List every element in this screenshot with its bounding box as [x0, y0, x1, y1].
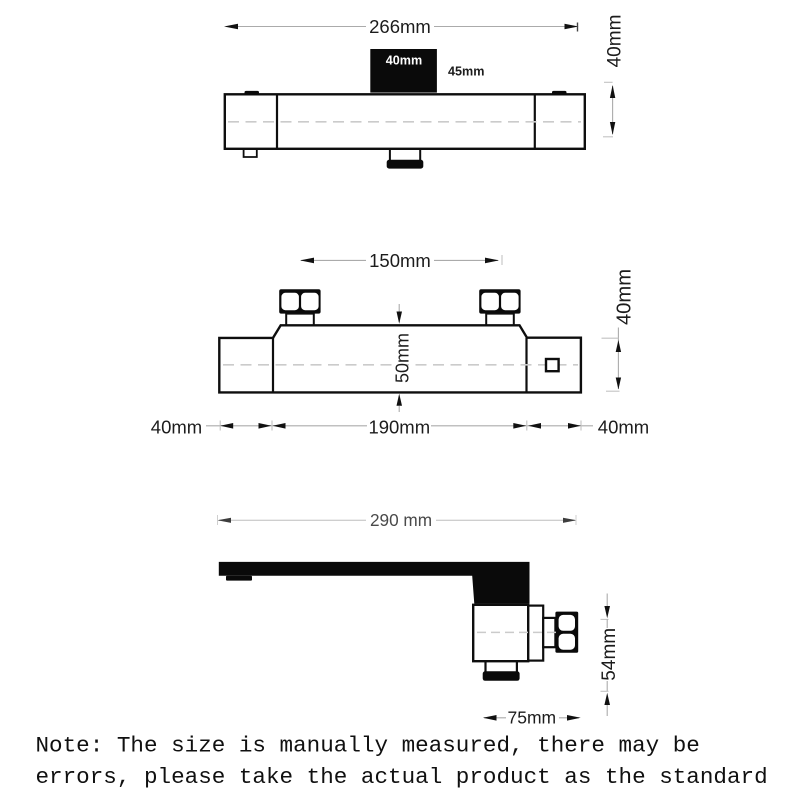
- svg-text:45mm: 45mm: [448, 65, 484, 79]
- svg-text:190mm: 190mm: [368, 416, 430, 437]
- svg-text:266mm: 266mm: [369, 16, 431, 37]
- svg-text:Note: The size is manually mea: Note: The size is manually measured, the…: [36, 733, 700, 759]
- svg-text:errors, please take the actual: errors, please take the actual product a…: [36, 764, 768, 790]
- svg-text:50mm: 50mm: [393, 333, 413, 383]
- svg-text:40mm: 40mm: [151, 416, 202, 437]
- svg-text:75mm: 75mm: [507, 708, 556, 728]
- svg-text:290 mm: 290 mm: [370, 510, 432, 530]
- svg-text:40mm: 40mm: [605, 15, 626, 68]
- svg-text:150mm: 150mm: [369, 250, 431, 271]
- svg-text:40mm: 40mm: [386, 54, 422, 68]
- svg-text:40mm: 40mm: [598, 416, 649, 437]
- svg-text:54mm: 54mm: [599, 628, 620, 681]
- svg-text:40mm: 40mm: [614, 269, 636, 325]
